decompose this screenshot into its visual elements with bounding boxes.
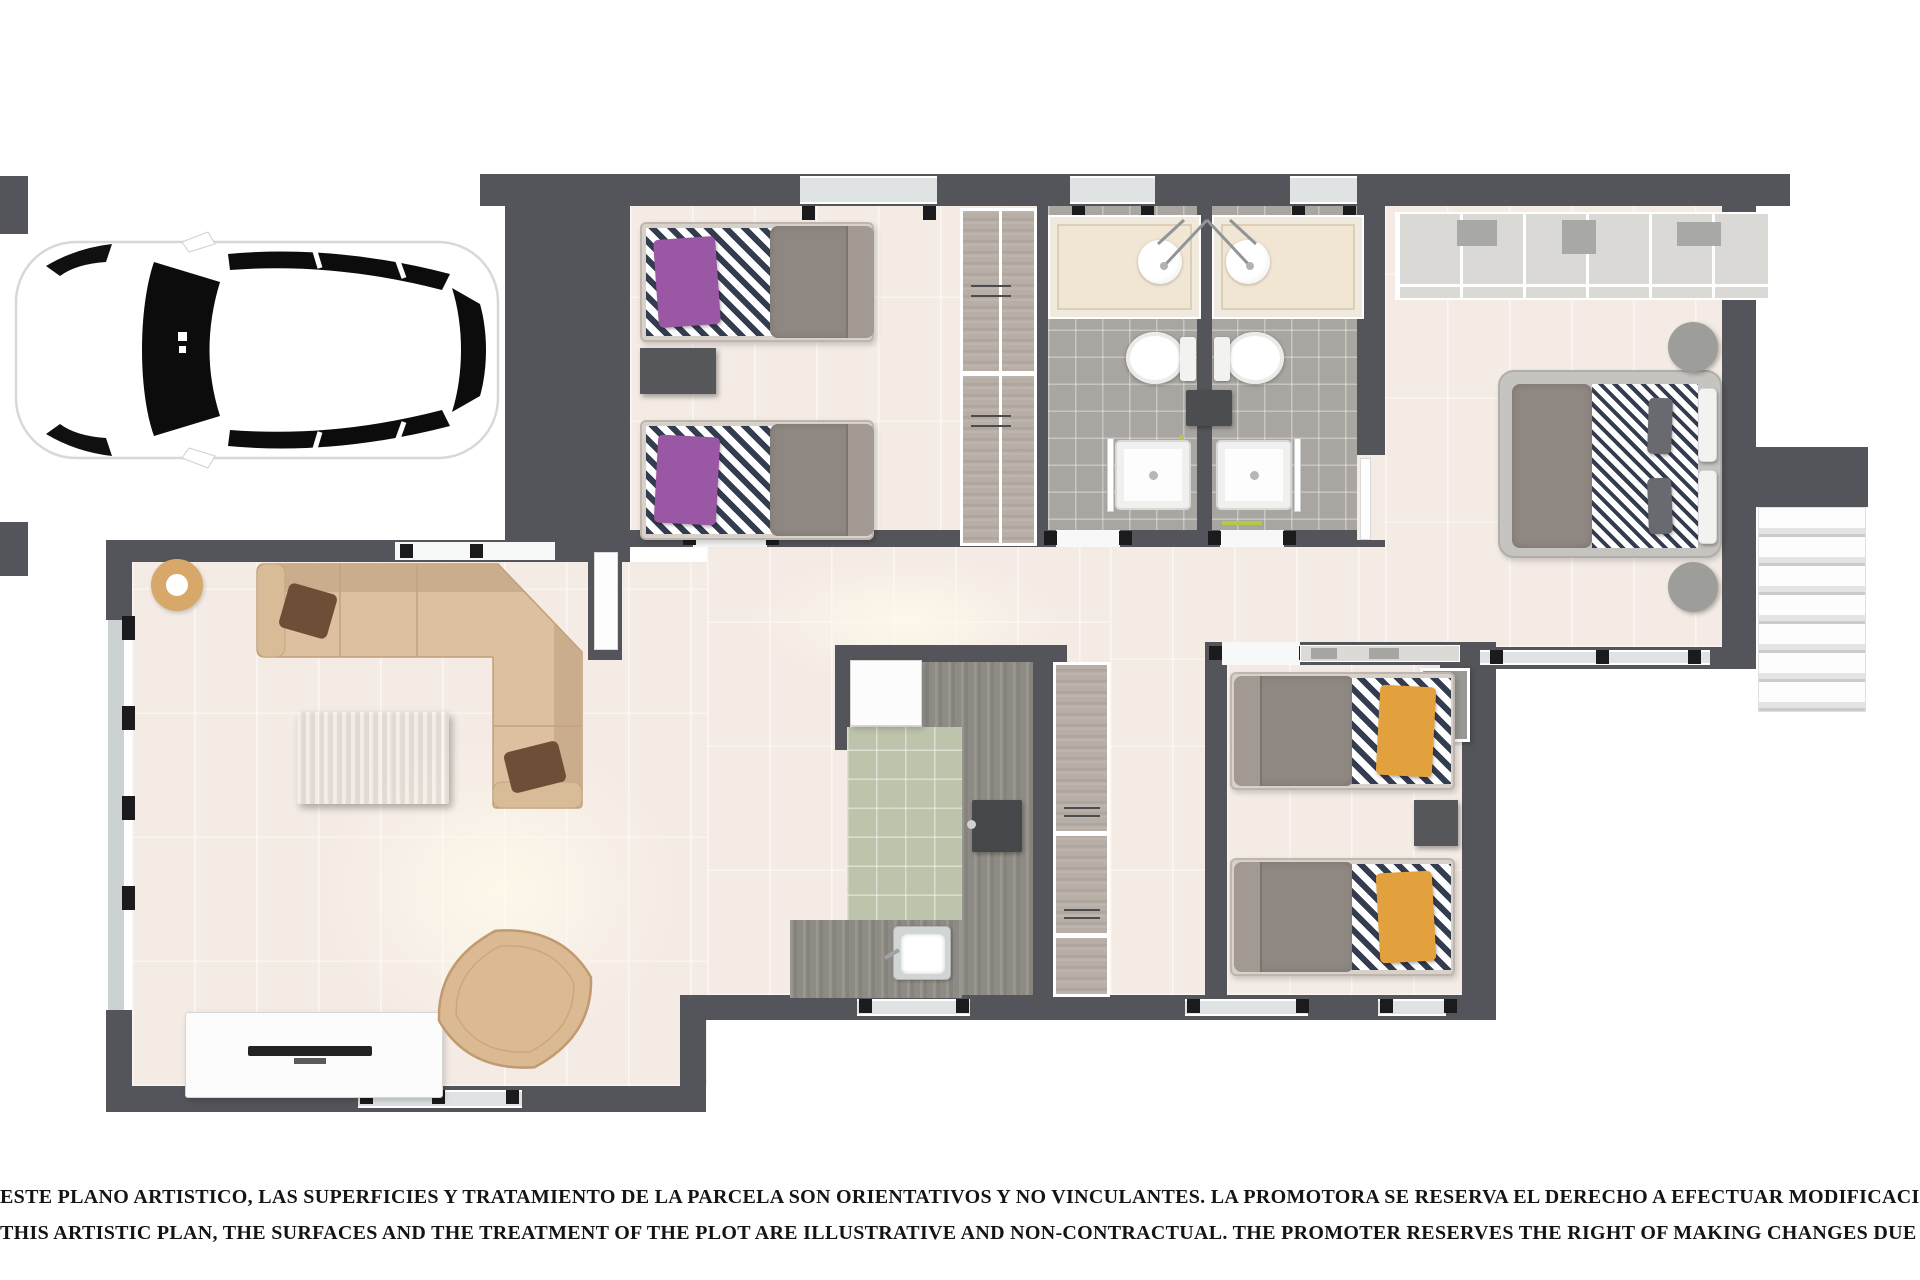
kitchen-sink-basin [901, 934, 945, 974]
pillow-purple [653, 236, 721, 328]
tv [248, 1046, 372, 1056]
wardrobe-twin-bedroom [960, 208, 1037, 546]
shower-drain [1250, 471, 1259, 480]
wall-kitchen-right [1033, 662, 1053, 997]
window-bath2 [1290, 176, 1357, 204]
window-sill-tick [122, 886, 135, 910]
hob [972, 800, 1022, 852]
pillow-purple [654, 434, 721, 525]
bed-yellow-2 [1230, 858, 1455, 976]
closet-handle [1064, 909, 1100, 911]
door-frame-tick [1209, 646, 1222, 660]
disclaimer-line-1: ESTE PLANO ARTISTICO, LAS SUPERFICIES Y … [0, 1186, 1920, 1209]
wall-bath-left [1037, 206, 1048, 547]
bed-yellow-1 [1230, 672, 1455, 790]
window-sill-tick [956, 999, 969, 1013]
bed-runner [1592, 384, 1698, 548]
window-sill-tick [1296, 999, 1309, 1013]
stairs [1758, 507, 1866, 712]
toilet-tank-bath2 [1214, 337, 1230, 381]
shower-screen [1294, 438, 1301, 512]
wall-stub-left-2 [0, 522, 28, 576]
window-sill-tick [506, 1090, 519, 1104]
towel-bar [1222, 521, 1262, 525]
door-frame-tick [1208, 531, 1221, 545]
wall-master-right-top [1756, 174, 1790, 206]
faucets [1146, 216, 1268, 288]
closet-handle [1064, 917, 1100, 919]
shower-screen [1107, 438, 1114, 512]
cushion-gray [1647, 398, 1673, 455]
window-master-bottom [1480, 650, 1710, 665]
wardrobe-divider [999, 211, 1002, 543]
shower-drain [1149, 471, 1158, 480]
storage-box [1369, 648, 1399, 659]
wardrobe-handle [971, 425, 1011, 427]
floor-plan [0, 0, 1920, 1280]
duvet-fold [1234, 862, 1262, 972]
wardrobe-handle [971, 415, 1011, 417]
closet-shelf [1056, 831, 1107, 836]
window-sill-tick [122, 616, 135, 640]
window-sill-tick [1187, 999, 1200, 1013]
master-wardrobe-wall [1395, 212, 1770, 300]
bed-twin-2 [640, 420, 874, 540]
toilet-bath2 [1226, 332, 1284, 384]
storage-box [1677, 222, 1721, 246]
wall-bottom-mid [680, 995, 1496, 1020]
nightstand [640, 348, 716, 394]
door-frame-tick [1044, 531, 1057, 545]
nightstand [1414, 800, 1458, 846]
storage-box [1562, 220, 1596, 254]
window-kitchen-bottom [857, 999, 970, 1016]
window-sill-tick [1688, 650, 1701, 664]
stair-landing [1756, 447, 1868, 507]
bedside-table-round [1668, 562, 1718, 612]
pillow-white [1698, 470, 1717, 544]
closet-handle [1064, 815, 1100, 817]
disclaimer-line-2: THIS ARTISTIC PLAN, THE SURFACES AND THE… [0, 1222, 1920, 1245]
door-frame-tick [1119, 531, 1132, 545]
pillow-yellow [1376, 871, 1437, 964]
duvet-fold [1234, 676, 1262, 786]
hanging-rail [1397, 284, 1768, 287]
wall-stub-left-1 [0, 176, 28, 234]
bedside-table-round [1668, 322, 1718, 372]
car-top-view [12, 230, 504, 470]
toilet-tank-bath1 [1180, 337, 1196, 381]
pillow-yellow [1376, 685, 1437, 778]
cushion-gray [1647, 478, 1673, 535]
wardrobe-handle [971, 295, 1011, 297]
door-bath2 [1220, 530, 1284, 547]
kitchen-floor [847, 727, 962, 925]
window-corridor-bottom [1185, 999, 1308, 1016]
wall-left-upper [106, 562, 132, 620]
hob-knob [967, 820, 976, 829]
window-sill-tick [1380, 999, 1393, 1013]
closet-shelf [1056, 933, 1107, 938]
pillow-white [1698, 388, 1717, 462]
corridor-floor [1110, 660, 1205, 995]
duvet [1512, 384, 1592, 548]
decor-ring [151, 559, 203, 611]
door-hall-leaf [594, 552, 618, 650]
window-sill-tick [923, 206, 936, 220]
bath-wall-cabinet [1186, 390, 1232, 426]
lounge-chair [428, 922, 603, 1077]
door-bedroom2 [1222, 642, 1300, 665]
storage-box [1311, 648, 1337, 659]
window-bedroomtwin [800, 176, 937, 204]
duvet-fold [846, 424, 874, 536]
window-bath1 [1070, 176, 1155, 204]
window-sill-tick [122, 796, 135, 820]
bedroom2-closet-band [1300, 645, 1460, 662]
fridge [850, 660, 922, 726]
wall-topleft-block [505, 206, 630, 546]
kitchen-sink [893, 926, 951, 980]
window-sill-tick [1444, 999, 1457, 1013]
door-bath1 [1056, 530, 1120, 547]
window-sill-tick [1596, 650, 1609, 664]
window-sill-tick [122, 706, 135, 730]
bed-twin-1 [640, 222, 874, 342]
door-master-leaf [1360, 458, 1371, 540]
wardrobe-shelf [963, 371, 1034, 376]
wall-bedroom2-left [1205, 655, 1227, 997]
bed-master [1498, 370, 1722, 558]
window-sill-tick [802, 206, 815, 220]
duvet-fold [846, 226, 874, 338]
window-sill-tick [859, 999, 872, 1013]
window-sill-tick [1490, 650, 1503, 664]
wardrobe-handle [971, 285, 1011, 287]
toilet-bath1 [1126, 332, 1184, 384]
hall-storage-closet [1053, 662, 1110, 997]
tv-stand [294, 1058, 326, 1064]
coffee-table [297, 712, 449, 804]
closet-handle [1064, 807, 1100, 809]
storage-box [1457, 220, 1497, 246]
door-frame-tick [1283, 531, 1296, 545]
